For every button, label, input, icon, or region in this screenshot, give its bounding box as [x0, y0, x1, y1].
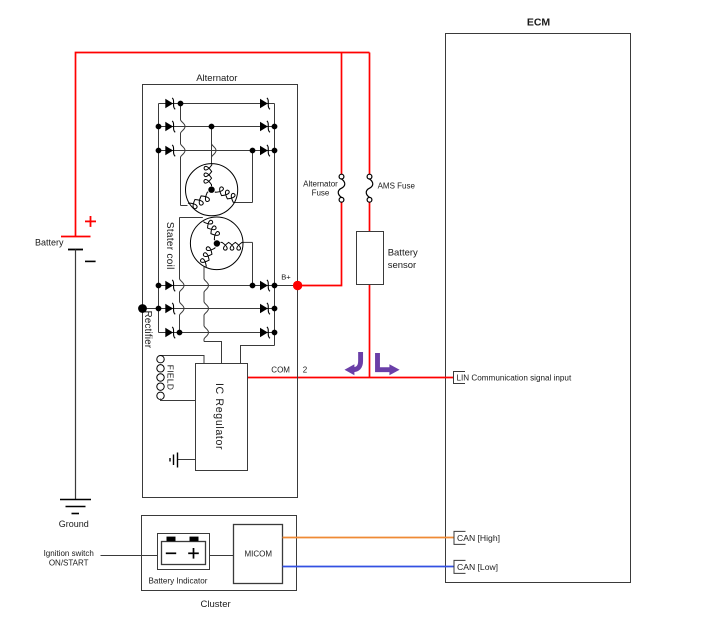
svg-text:Rectifier: Rectifier: [142, 311, 153, 349]
svg-text:FIELD: FIELD: [165, 365, 175, 391]
svg-text:Ground: Ground: [59, 519, 89, 529]
svg-text:2: 2: [303, 366, 308, 375]
svg-text:CAN [Low]: CAN [Low]: [457, 562, 498, 572]
svg-text:Cluster: Cluster: [201, 599, 231, 610]
svg-text:Battery Indicator: Battery Indicator: [149, 577, 208, 586]
svg-text:B+: B+: [281, 272, 291, 281]
svg-text:Ignition switch: Ignition switch: [44, 549, 94, 558]
svg-text:MICOM: MICOM: [245, 550, 273, 559]
svg-text:ECM: ECM: [527, 17, 551, 29]
svg-text:Alternator: Alternator: [196, 73, 237, 84]
svg-text:sensor: sensor: [388, 260, 417, 271]
svg-text:COM: COM: [271, 366, 290, 375]
svg-text:LIN Communication signal input: LIN Communication signal input: [457, 374, 572, 383]
svg-text:CAN [High]: CAN [High]: [457, 533, 500, 543]
svg-text:Stater coil: Stater coil: [164, 222, 175, 270]
svg-text:Fuse: Fuse: [312, 189, 330, 198]
svg-text:IC Regulator: IC Regulator: [213, 383, 225, 450]
svg-text:Battery: Battery: [35, 237, 64, 247]
svg-text:ON/START: ON/START: [49, 559, 89, 568]
svg-text:AMS Fuse: AMS Fuse: [378, 182, 416, 191]
svg-text:Alternator: Alternator: [303, 179, 338, 188]
svg-text:Battery: Battery: [388, 247, 418, 258]
